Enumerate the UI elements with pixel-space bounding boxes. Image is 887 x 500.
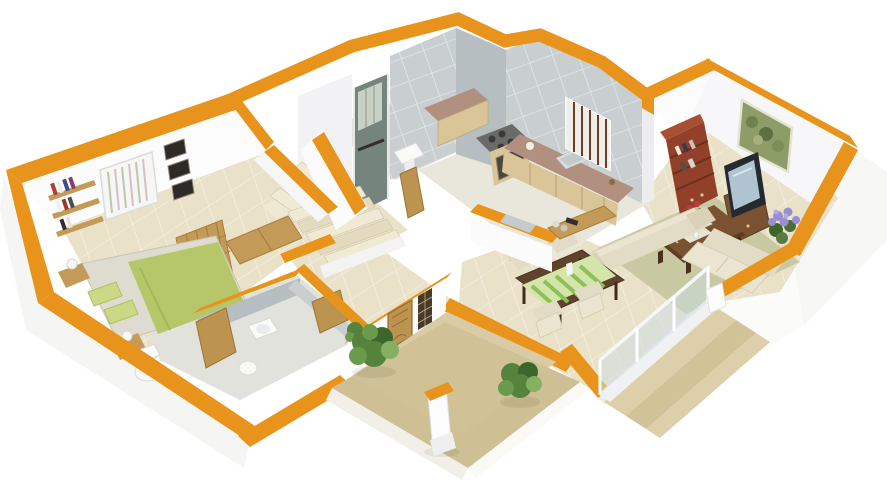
kitchen-living-divider — [642, 108, 654, 204]
canister — [561, 225, 568, 232]
floor-plan-render — [0, 0, 887, 500]
sink-bowl — [256, 324, 270, 334]
bidet — [239, 361, 257, 375]
table-lamp — [67, 259, 77, 269]
floor-plan-svg — [0, 0, 887, 500]
porch-shrub-right — [498, 362, 542, 408]
kettle — [526, 142, 534, 150]
candle — [566, 262, 573, 276]
bath-door — [400, 167, 424, 218]
jar — [609, 179, 615, 185]
divider-edge-face — [642, 108, 654, 204]
canister — [553, 221, 560, 228]
table-leg — [658, 250, 663, 264]
